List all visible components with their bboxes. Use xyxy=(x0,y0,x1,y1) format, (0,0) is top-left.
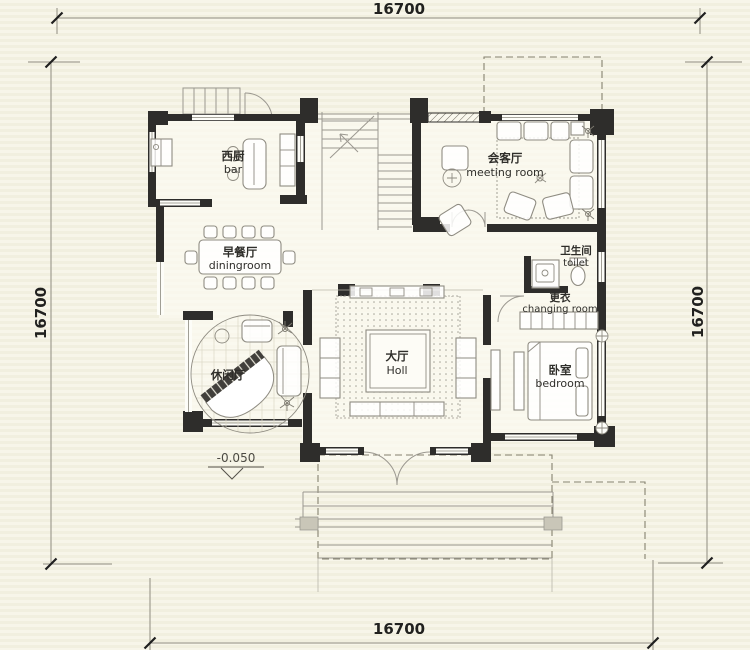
label-bedroom-zh: 卧室 xyxy=(549,363,572,377)
dimension-bottom: 16700 xyxy=(145,560,659,650)
column-symbol xyxy=(596,330,608,342)
dim-bottom-value: 16700 xyxy=(373,620,425,638)
label-hall-en: Holl xyxy=(386,364,407,377)
dimension-left: 16700 xyxy=(28,57,112,570)
label-toilet-zh: 卫生间 xyxy=(560,244,592,257)
elevation-marker: -0.050 xyxy=(208,451,264,479)
label-dining-en: diningroom xyxy=(209,259,271,272)
dim-left-value: 16700 xyxy=(32,287,50,339)
label-dining-zh: 早餐厅 xyxy=(223,245,258,259)
exterior-stairs xyxy=(183,88,272,116)
label-meeting-zh: 会客厅 xyxy=(487,151,523,165)
label-bar-zh: 西厨 xyxy=(222,149,245,163)
column-symbol xyxy=(596,422,608,434)
floor-plan-canvas: 16700 16700 16700 16700 xyxy=(0,0,750,650)
label-leisure-zh: 休闲厅 xyxy=(210,368,246,382)
label-bedroom-en: bedroom xyxy=(535,377,584,390)
dimension-top: 16700 xyxy=(52,0,706,34)
dimension-right: 16700 xyxy=(658,57,742,569)
dim-top-value: 16700 xyxy=(373,0,425,18)
elevation-value: -0.050 xyxy=(217,451,256,465)
label-bar-en: bar xyxy=(224,163,243,176)
label-meeting-en: meeting room xyxy=(466,166,544,179)
label-changing-zh: 更衣 xyxy=(550,291,571,304)
label-toilet-en: toilet xyxy=(563,258,589,269)
label-hall-zh: 大厅 xyxy=(386,349,409,363)
porch-steps xyxy=(295,492,562,592)
label-changing-en: changing room xyxy=(522,304,597,315)
dim-right-value: 16700 xyxy=(689,286,707,338)
